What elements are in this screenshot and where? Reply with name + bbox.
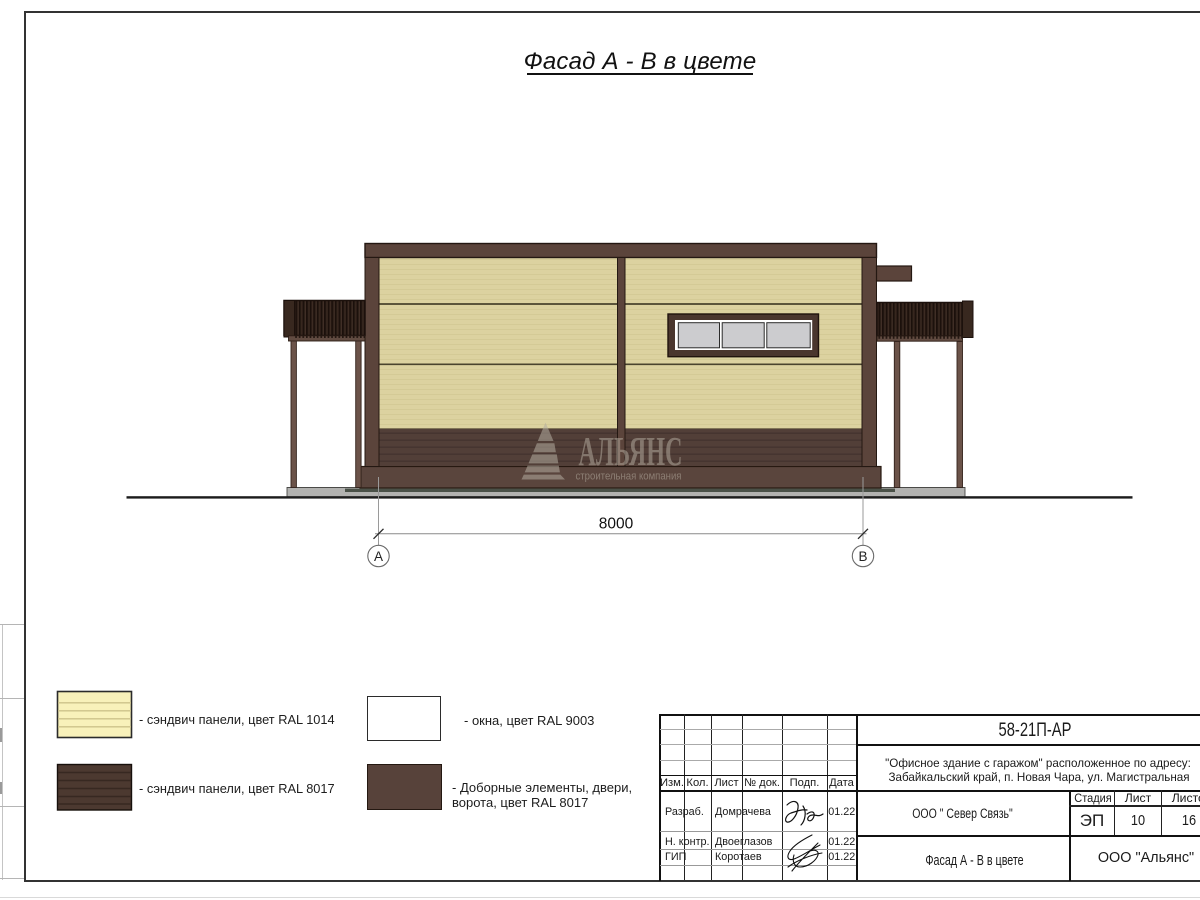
- svg-text:А: А: [374, 549, 383, 564]
- svg-text:8000: 8000: [599, 516, 634, 533]
- svg-text:АЛЬЯНС: АЛЬЯНС: [579, 428, 683, 474]
- svg-text:В: В: [858, 549, 867, 564]
- svg-text:строительная компания: строительная компания: [576, 471, 682, 483]
